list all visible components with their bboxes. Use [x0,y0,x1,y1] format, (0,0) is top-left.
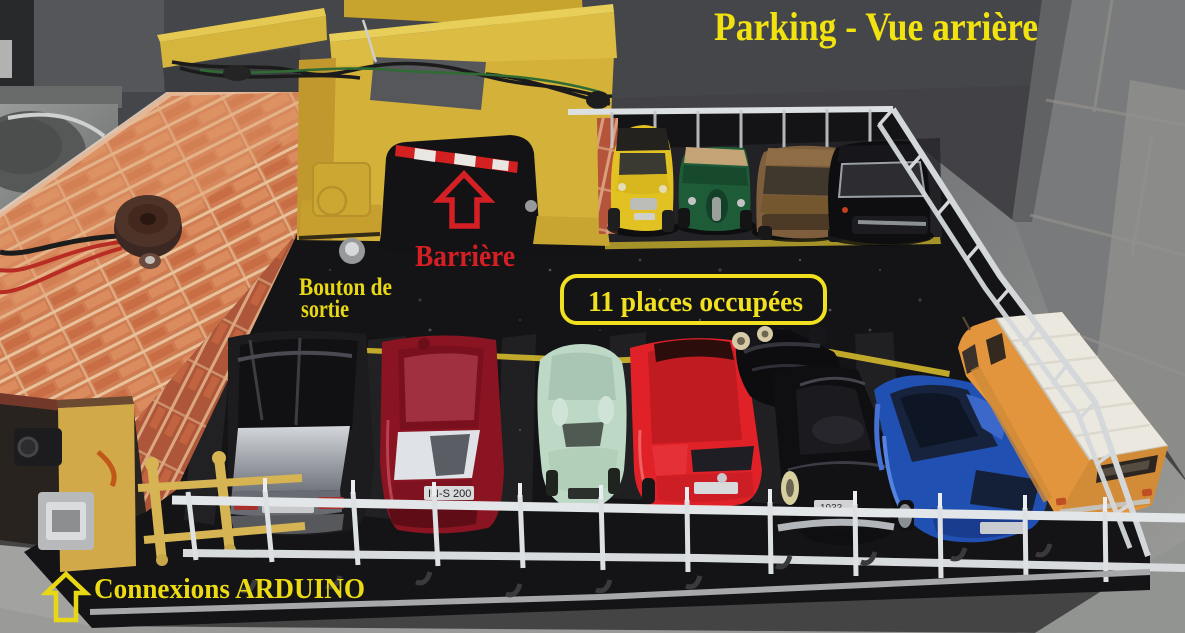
svg-text:Connexions ARDUINO: Connexions ARDUINO [94,574,365,605]
svg-text:Parking - Vue arrière: Parking - Vue arrière [714,4,1038,49]
svg-text:11 places occupées: 11 places occupées [588,287,803,318]
svg-text:Barrière: Barrière [415,238,515,273]
svg-text:sortie: sortie [301,296,349,323]
